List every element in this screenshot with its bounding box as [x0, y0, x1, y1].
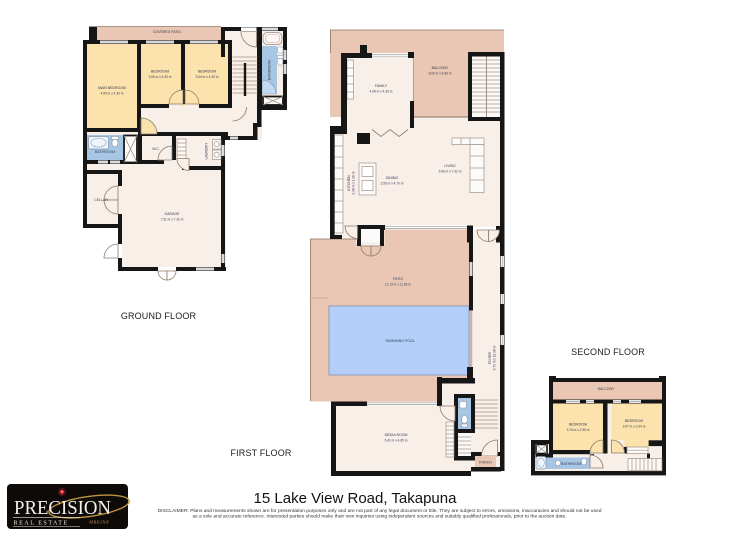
- svg-text:4.08 m x 4.36 m: 4.08 m x 4.36 m: [370, 90, 393, 94]
- svg-text:GROUND FLOOR: GROUND FLOOR: [121, 311, 197, 321]
- svg-text:BALCONY: BALCONY: [432, 66, 449, 70]
- svg-text:4.95 m x 4.30 m: 4.95 m x 4.30 m: [101, 92, 124, 96]
- svg-text:PORCH: PORCH: [479, 461, 492, 465]
- svg-text:SWIMMING POOL: SWIMMING POOL: [385, 339, 414, 343]
- svg-text:5.96 m x 7.32 m: 5.96 m x 7.32 m: [439, 170, 462, 174]
- svg-text:6.41 m x 4.65 m: 6.41 m x 4.65 m: [385, 439, 408, 443]
- svg-text:3.04 m x 4.30 m: 3.04 m x 4.30 m: [196, 75, 219, 79]
- svg-text:as a sole and accurate referen: as a sole and accurate reference. Intere…: [192, 514, 566, 520]
- svg-text:SECOND FLOOR: SECOND FLOOR: [571, 347, 645, 357]
- svg-text:PATIO: PATIO: [393, 277, 403, 281]
- svg-text:LAUNDRY: LAUNDRY: [205, 142, 209, 159]
- svg-text:COVERED PATIO: COVERED PATIO: [153, 30, 182, 34]
- svg-text:MREINZ: MREINZ: [88, 520, 109, 525]
- svg-text:KITCHEN: KITCHEN: [347, 175, 351, 191]
- svg-text:8.60 m x 6.66 m: 8.60 m x 6.66 m: [429, 72, 452, 76]
- svg-text:MAIN BEDROOM: MAIN BEDROOM: [98, 86, 126, 90]
- svg-text:BEDROOM: BEDROOM: [569, 423, 587, 427]
- svg-text:BEDROOM: BEDROOM: [625, 419, 643, 423]
- svg-text:7.51 m x 7.20 m: 7.51 m x 7.20 m: [161, 218, 184, 222]
- svg-text:LIVING: LIVING: [444, 164, 456, 168]
- svg-text:FOYER: FOYER: [488, 352, 492, 365]
- svg-text:BEDROOM: BEDROOM: [151, 70, 169, 74]
- svg-text:3.67 m x 2.94 m: 3.67 m x 2.94 m: [623, 425, 646, 429]
- svg-text:3.50 m x 4.70 m: 3.50 m x 4.70 m: [381, 182, 404, 186]
- svg-text:W.C.: W.C.: [152, 147, 160, 151]
- svg-text:DINING: DINING: [386, 176, 399, 180]
- svg-text:15 Lake View Road, Takapuna: 15 Lake View Road, Takapuna: [254, 490, 458, 507]
- svg-text:REAL ESTATE: REAL ESTATE: [14, 520, 69, 526]
- svg-text:BATHROOM: BATHROOM: [561, 462, 581, 466]
- svg-text:11.13 m x 11.66 m: 11.13 m x 11.66 m: [385, 283, 411, 287]
- svg-text:3.69 m x 4.30 m: 3.69 m x 4.30 m: [149, 75, 172, 79]
- svg-text:BATHROOM: BATHROOM: [95, 150, 115, 154]
- svg-text:FIRST FLOOR: FIRST FLOOR: [231, 448, 292, 458]
- svg-text:PRECISION: PRECISION: [14, 498, 111, 519]
- svg-text:3.75 m x 2.96 m: 3.75 m x 2.96 m: [567, 428, 590, 432]
- svg-text:GARAGE: GARAGE: [165, 212, 181, 216]
- svg-text:2.96 m x 1.96 m: 2.96 m x 1.96 m: [352, 171, 356, 194]
- svg-text:BATHROOM: BATHROOM: [268, 60, 272, 80]
- svg-text:3.79 m x 10.98 m: 3.79 m x 10.98 m: [493, 345, 497, 370]
- svg-text:MEDIA ROOM: MEDIA ROOM: [385, 433, 408, 437]
- svg-text:BALCONY: BALCONY: [598, 387, 615, 391]
- svg-text:DISCLAIMER: Plans and measurem: DISCLAIMER: Plans and measurements shown…: [158, 508, 602, 514]
- svg-text:CELLAR: CELLAR: [94, 198, 108, 202]
- svg-text:FAMILY: FAMILY: [375, 84, 388, 88]
- svg-text:BEDROOM: BEDROOM: [198, 70, 216, 74]
